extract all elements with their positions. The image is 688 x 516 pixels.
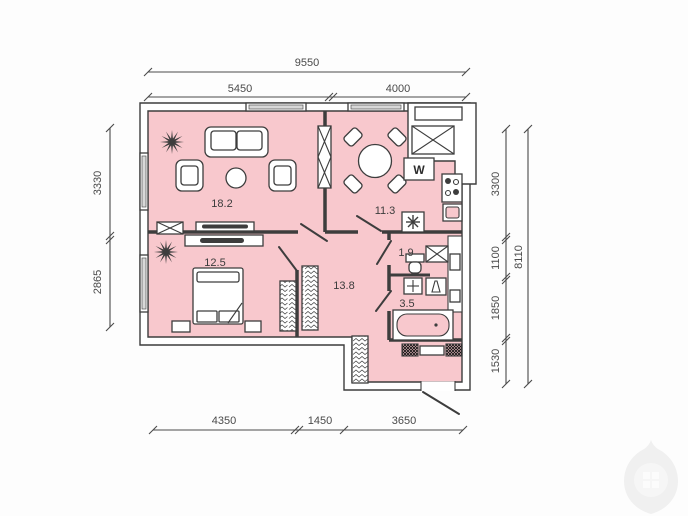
shower-tray-icon — [426, 278, 446, 295]
washbasin-icon — [426, 246, 448, 262]
bidet-icon — [404, 278, 422, 294]
dim-label-right-s1: 3300 — [490, 172, 502, 196]
utility-shaft-strip — [448, 236, 462, 312]
dim-label-bottom-s3: 3650 — [392, 415, 416, 427]
room-label-wc: 1.9 — [398, 247, 413, 259]
entry-door — [421, 381, 459, 414]
sofa-icon — [205, 127, 268, 157]
floor-plan: W — [0, 0, 688, 516]
floor-plan-page: W — [0, 0, 688, 516]
wardrobe-icon-entry — [352, 336, 368, 383]
window-icon-left-bedroom — [140, 255, 148, 312]
kitchen-sink-icon — [443, 204, 462, 221]
wardrobe-column-icon — [318, 126, 331, 188]
dim-label-top-right: 4000 — [386, 83, 410, 95]
window-icon-top-kitchen — [348, 103, 404, 111]
room-label-bedroom: 12.5 — [204, 257, 225, 269]
dim-label-bottom-s2: 1450 — [308, 415, 332, 427]
room-label-kitchen: 11.3 — [375, 205, 396, 217]
dim-label-left-top: 3330 — [92, 171, 104, 195]
dresser-icon — [185, 235, 263, 246]
dim-label-top-left: 5450 — [228, 83, 252, 95]
dim-label-bottom-s1: 4350 — [212, 415, 236, 427]
dim-label-top-total: 9550 — [295, 57, 319, 69]
room-label-bathroom: 3.5 — [399, 298, 414, 310]
stove-icon — [442, 174, 462, 202]
bed-icon — [193, 268, 243, 324]
dim-label-right-total: 8110 — [513, 245, 525, 269]
bathtub-icon — [393, 310, 453, 340]
wardrobe-icon-hall — [302, 266, 318, 330]
wardrobe-icon-bedroom — [280, 281, 296, 331]
dim-label-left-bottom: 2865 — [92, 270, 104, 294]
cabinet-x-icon — [157, 222, 183, 234]
developer-logo-watermark — [624, 440, 678, 514]
coffee-table-icon — [226, 168, 246, 188]
dim-label-right-s4: 1530 — [490, 349, 502, 373]
window-icon-top-living — [246, 103, 306, 111]
tv-stand-icon — [196, 222, 254, 231]
dim-label-right-s3: 1850 — [490, 296, 502, 320]
vent-shaft-icon — [412, 126, 454, 154]
washer-label: W — [413, 163, 425, 177]
room-label-hallway: 13.8 — [333, 280, 354, 292]
armchair-icon-left — [176, 160, 203, 191]
washing-machine-icon: W — [404, 158, 434, 180]
armchair-icon-right — [269, 160, 296, 191]
vent-fan-icon — [402, 212, 424, 232]
dim-label-right-s2: 1100 — [490, 246, 502, 270]
window-icon-left-living — [140, 153, 148, 210]
nightstand-icon-right — [245, 321, 261, 332]
nightstand-icon-left — [172, 321, 190, 332]
duct-icon — [402, 344, 462, 356]
room-label-living: 18.2 — [211, 198, 232, 210]
